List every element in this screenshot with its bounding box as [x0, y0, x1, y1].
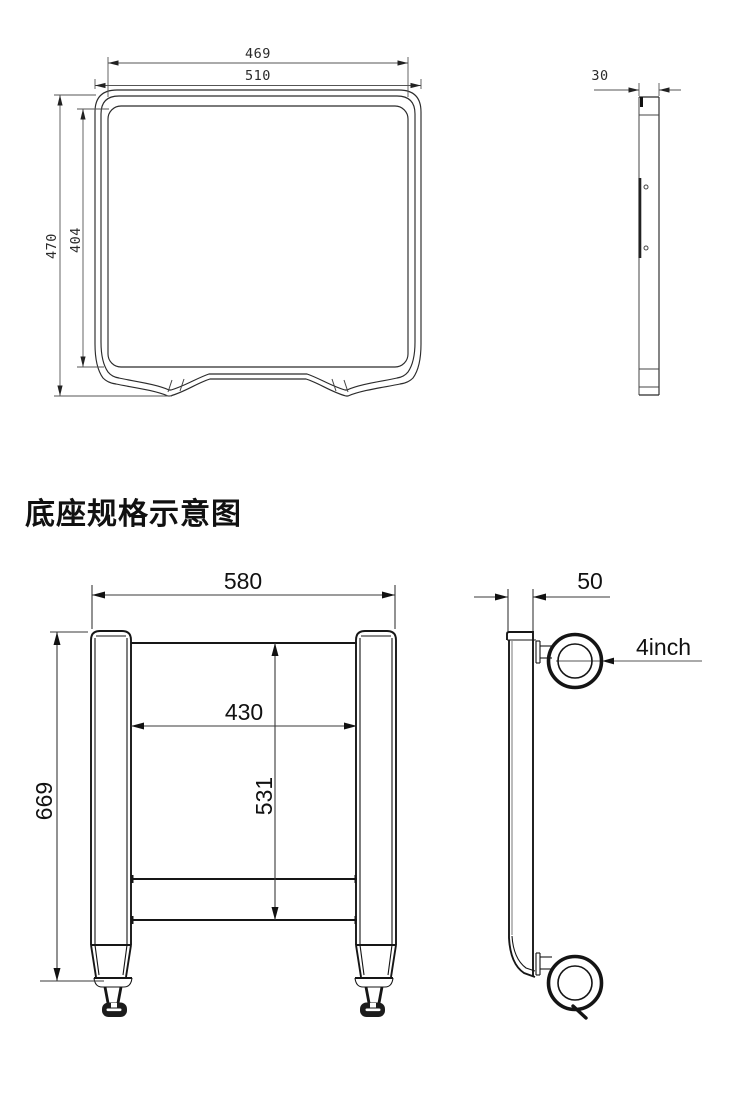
- dim-base-panel-thickness: 50: [474, 568, 610, 631]
- dim-panel-thickness: 30: [591, 68, 681, 96]
- dim-label-531: 531: [251, 777, 277, 815]
- caster-size-label: 4inch: [636, 634, 691, 660]
- dim-label-30: 30: [591, 68, 608, 84]
- tray-outer-outline: [95, 90, 421, 396]
- dim-base-inner-width: 430: [131, 699, 357, 726]
- spec-drawing-page: 底座规格示意图: [0, 0, 750, 1093]
- dim-label-430: 430: [225, 699, 263, 725]
- dim-label-669: 669: [31, 782, 57, 820]
- technical-drawing-canvas: 469 510 470 404: [0, 0, 750, 1093]
- dim-tray-inner-height: 404: [68, 109, 109, 367]
- dim-label-469: 469: [245, 46, 271, 62]
- mount-hole-lower: [644, 246, 648, 250]
- panel-top-cap: [507, 632, 533, 640]
- dim-base-overall-height: 669: [31, 632, 104, 981]
- base-front-view: 580 430 531 669: [31, 568, 396, 1017]
- base-leg-with-caster: [91, 631, 132, 1017]
- tabletop-side-view: 30: [591, 68, 681, 395]
- dim-tray-outer-width: 510: [95, 68, 421, 89]
- tray-inner-surface: [108, 106, 408, 367]
- dim-label-404: 404: [68, 227, 84, 253]
- dim-label-50: 50: [577, 568, 603, 594]
- base-leg-with-caster-right: [355, 631, 396, 1017]
- caster-foot-cap: [94, 978, 132, 987]
- caster-leader-arrow: [602, 658, 614, 665]
- dim-label-510: 510: [245, 68, 271, 84]
- dim-label-580: 580: [224, 568, 262, 594]
- dim-label-470: 470: [44, 233, 60, 259]
- caster-wheel-front: [102, 1003, 127, 1018]
- tabletop-top-view: 469 510 470 404: [44, 46, 421, 396]
- mount-hole-upper: [644, 185, 648, 189]
- lower-crossbar: [131, 875, 357, 924]
- tray-middle-outline: [101, 96, 415, 390]
- caster-mount: [105, 987, 121, 1003]
- dim-base-outer-width: 580: [92, 568, 395, 629]
- base-side-view: 4inch 50: [474, 568, 702, 1018]
- caster-wheel-lower: [549, 957, 602, 1019]
